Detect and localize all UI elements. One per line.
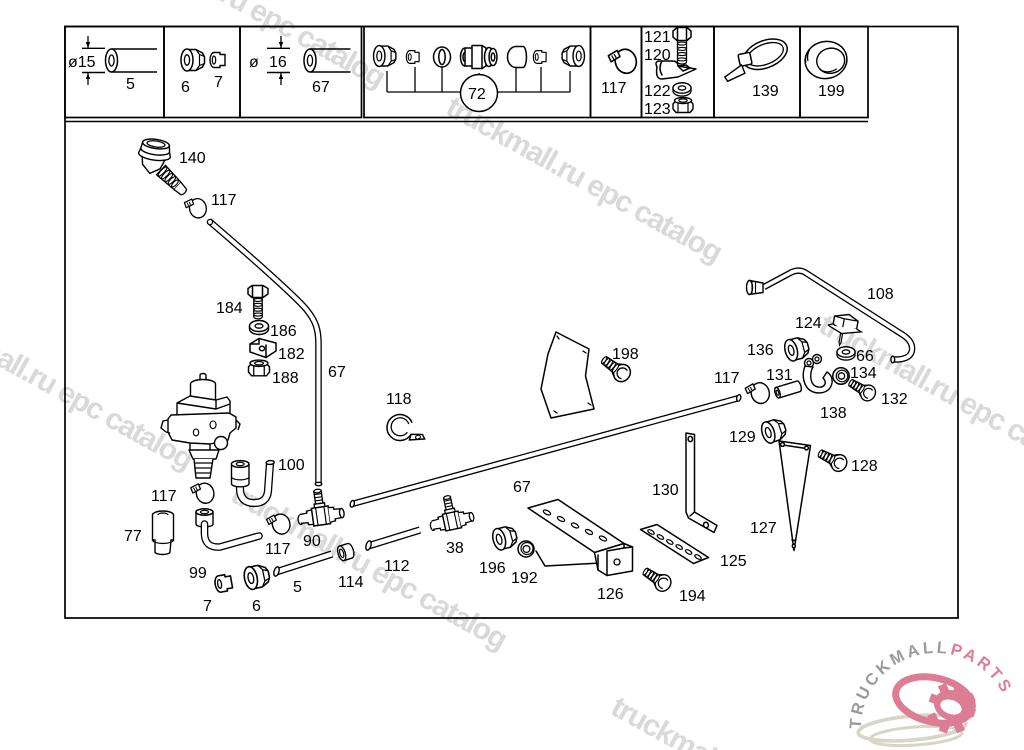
svg-text:67: 67 bbox=[328, 364, 346, 381]
svg-text:67: 67 bbox=[513, 479, 531, 496]
svg-text:114: 114 bbox=[338, 574, 364, 591]
svg-text:140: 140 bbox=[179, 150, 206, 167]
svg-text:199: 199 bbox=[818, 83, 845, 100]
svg-text:ø: ø bbox=[249, 54, 259, 71]
svg-text:100: 100 bbox=[278, 457, 305, 474]
svg-text:198: 198 bbox=[612, 346, 639, 363]
svg-text:188: 188 bbox=[272, 370, 299, 387]
svg-text:123: 123 bbox=[644, 101, 671, 118]
svg-text:77: 77 bbox=[124, 528, 142, 545]
svg-text:127: 127 bbox=[750, 520, 777, 537]
svg-text:5: 5 bbox=[293, 579, 302, 596]
svg-text:122: 122 bbox=[644, 83, 671, 100]
svg-text:117: 117 bbox=[211, 192, 237, 209]
svg-text:194: 194 bbox=[679, 588, 706, 605]
svg-text:134: 134 bbox=[850, 365, 877, 382]
svg-text:192: 192 bbox=[511, 570, 538, 587]
svg-text:125: 125 bbox=[720, 553, 747, 570]
svg-text:196: 196 bbox=[479, 560, 506, 577]
svg-text:182: 182 bbox=[278, 346, 305, 363]
svg-text:6: 6 bbox=[181, 79, 190, 96]
svg-text:126: 126 bbox=[597, 586, 624, 603]
svg-text:130: 130 bbox=[652, 482, 679, 499]
svg-text:186: 186 bbox=[270, 323, 297, 340]
svg-text:117: 117 bbox=[151, 488, 177, 505]
svg-text:7: 7 bbox=[203, 598, 212, 615]
svg-text:112: 112 bbox=[384, 558, 410, 575]
svg-text:67: 67 bbox=[312, 79, 330, 96]
svg-text:118: 118 bbox=[386, 391, 412, 408]
svg-text:120: 120 bbox=[644, 47, 671, 64]
svg-text:128: 128 bbox=[851, 458, 878, 475]
svg-text:132: 132 bbox=[881, 391, 908, 408]
svg-text:99: 99 bbox=[189, 565, 207, 582]
svg-text:108: 108 bbox=[867, 286, 894, 303]
svg-text:136: 136 bbox=[747, 342, 774, 359]
svg-text:117: 117 bbox=[601, 80, 627, 97]
svg-text:184: 184 bbox=[216, 300, 243, 317]
svg-text:138: 138 bbox=[820, 405, 847, 422]
svg-text:38: 38 bbox=[446, 540, 464, 557]
svg-text:ø15: ø15 bbox=[68, 54, 96, 71]
svg-text:131: 131 bbox=[766, 367, 793, 384]
svg-text:129: 129 bbox=[729, 429, 756, 446]
svg-text:139: 139 bbox=[752, 83, 779, 100]
svg-text:5: 5 bbox=[126, 76, 135, 93]
svg-text:117: 117 bbox=[714, 370, 740, 387]
svg-text:7: 7 bbox=[214, 74, 223, 91]
svg-text:6: 6 bbox=[252, 598, 261, 615]
svg-text:66: 66 bbox=[856, 348, 874, 365]
svg-text:90: 90 bbox=[303, 533, 321, 550]
svg-text:124: 124 bbox=[795, 315, 822, 332]
svg-text:72: 72 bbox=[468, 86, 486, 103]
svg-text:16: 16 bbox=[269, 54, 287, 71]
svg-text:121: 121 bbox=[644, 29, 671, 46]
svg-text:117: 117 bbox=[265, 541, 291, 558]
